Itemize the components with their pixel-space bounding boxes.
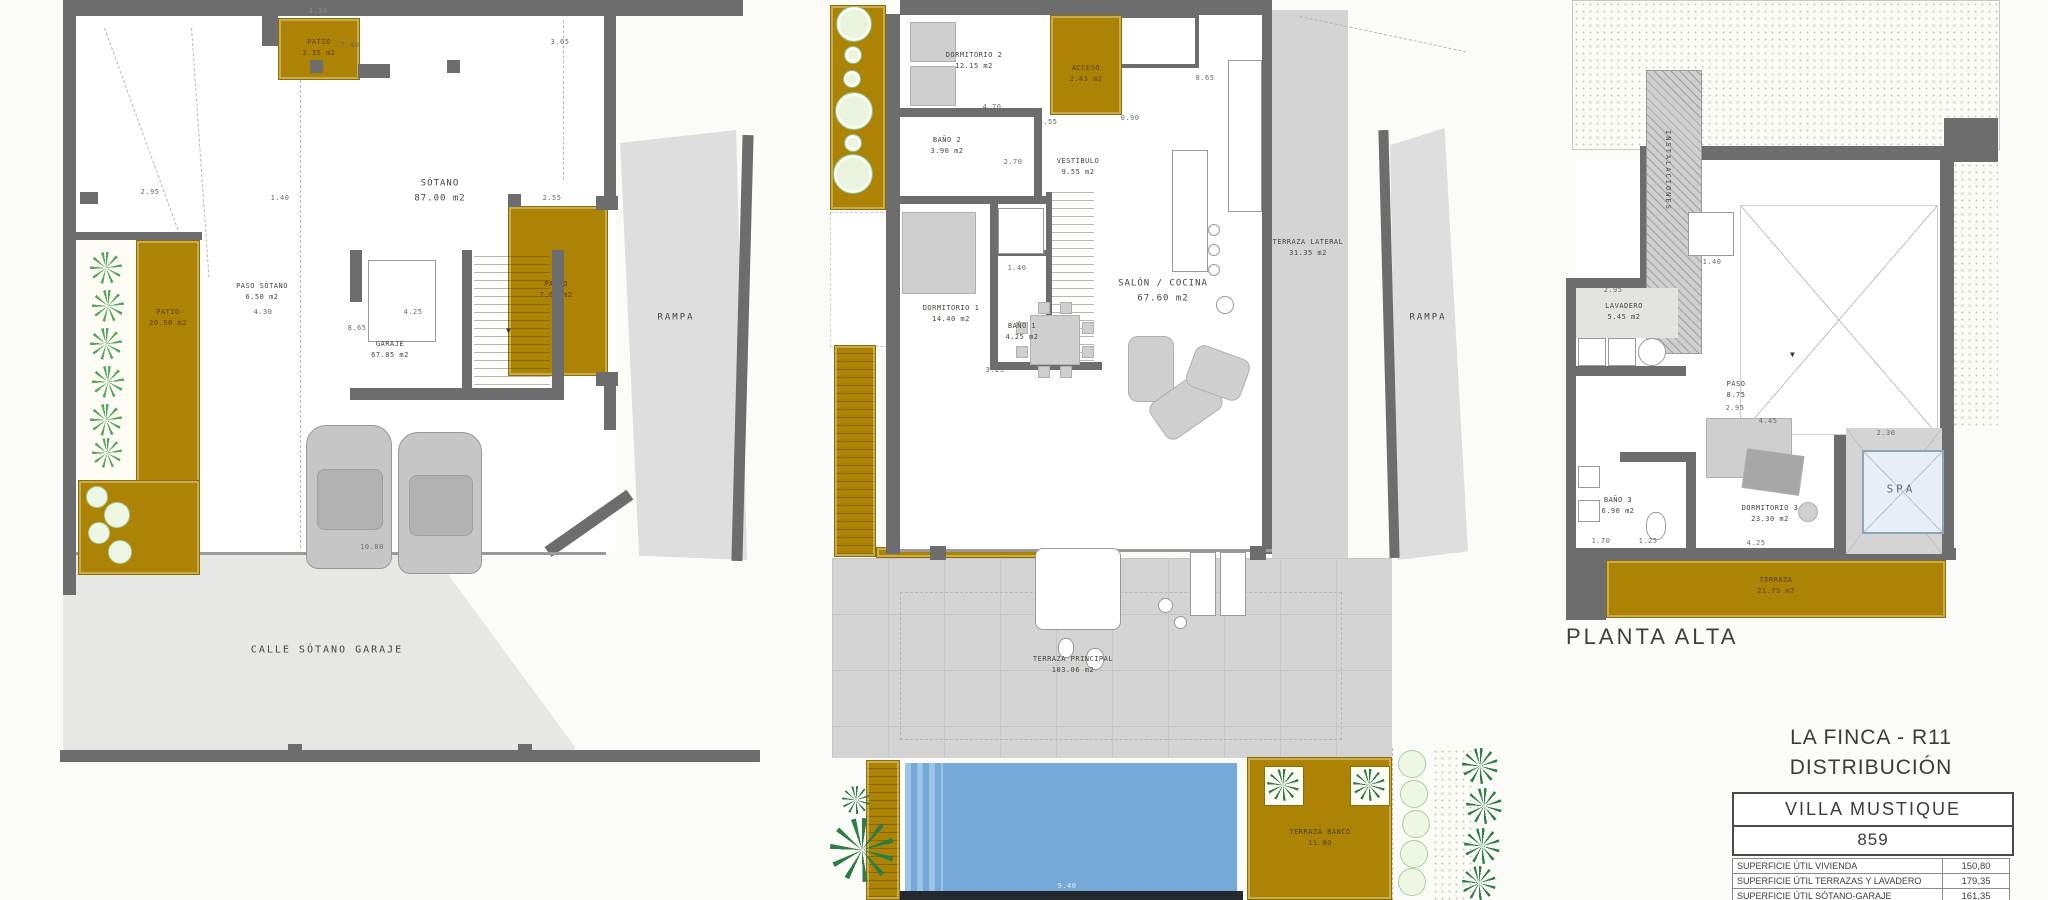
palm-icon [1353, 769, 1385, 801]
room-label-dormitorio1: DORMITORIO 1 14.40 m2 [923, 303, 980, 325]
plant-icon [90, 252, 122, 284]
side-table [1216, 296, 1234, 314]
dimension: 1.70 [1592, 537, 1611, 545]
dimension: 4.45 [1759, 417, 1778, 425]
car-roof [317, 469, 383, 531]
palm-icon [1464, 828, 1500, 864]
dimension: 3.55 [1039, 118, 1058, 126]
elevator [1688, 212, 1734, 256]
wall-segment [76, 232, 202, 240]
dimension: 8.65 [1196, 74, 1215, 82]
elevator [998, 208, 1044, 254]
room-label-acceso: ACCESO 2.43 m2 [1069, 63, 1102, 85]
terrace-dashed-outline [900, 592, 1342, 740]
ramp-label: RAMPA [657, 310, 694, 325]
sink [1578, 500, 1600, 522]
wall-post [518, 744, 532, 754]
floor-title-planta-alta: PLANTA ALTA [1566, 624, 1738, 650]
palm-icon [1462, 866, 1496, 900]
blanket [1741, 448, 1804, 496]
plant-icon [90, 328, 122, 360]
dimension: 2.95 [141, 188, 160, 196]
bush-icon [88, 522, 110, 544]
room-label-terraza-lateral: TERRAZA LATERAL 31.35 m2 [1273, 237, 1344, 259]
small-table [1158, 598, 1173, 613]
washer [1608, 338, 1636, 366]
wall-segment [1686, 452, 1696, 558]
wall-segment [1566, 366, 1686, 376]
wall-segment [900, 196, 1048, 204]
column [930, 546, 946, 560]
dimension: 2.95 [1604, 286, 1623, 294]
wall-segment [1566, 278, 1576, 558]
room-label-vestibulo: VESTÍBULO 9.55 m2 [1057, 156, 1099, 178]
kitchen-counter [1228, 60, 1262, 212]
stairwell-void [1740, 205, 1938, 435]
dimension: 3.65 [551, 38, 570, 46]
kitchen-island [1172, 150, 1208, 272]
room-label-salon: SALÓN / COCINA 67.60 m2 [1118, 277, 1208, 308]
dimension: 7.40 [341, 41, 360, 49]
dimension: 4.25 [404, 308, 423, 316]
area-value: 179,35 [1943, 874, 2010, 889]
dimension: 1.40 [1703, 258, 1722, 266]
plant-icon [92, 290, 124, 322]
tree-icon [844, 134, 862, 152]
tree-icon [843, 70, 861, 88]
wall-segment [886, 14, 900, 554]
bush-icon [1398, 750, 1426, 778]
project-title: LA FINCA - R11 [1730, 726, 2012, 750]
wall-segment [990, 204, 998, 366]
palm-icon [1466, 788, 1502, 824]
pool-edge [898, 891, 1243, 900]
area-label: SUPERFICIE ÚTIL SÓTANO-GARAJE [1733, 889, 1943, 900]
elevator [368, 260, 436, 342]
dashed-boundary [1392, 748, 1393, 900]
room-label-garaje: GARAJE 67.85 m2 [371, 339, 409, 361]
ramp-area [1390, 128, 1468, 560]
dimension: 1.40 [271, 194, 290, 202]
bush-icon [1400, 780, 1428, 808]
wall-segment [1566, 560, 1606, 620]
palm-icon [842, 786, 870, 814]
column [447, 60, 460, 73]
room-label-paso-sotano: PASO SÓTANO 6.50 m2 [236, 281, 288, 303]
tree-icon [835, 92, 873, 130]
roof-terrace-side [1952, 148, 1998, 430]
lounger [1220, 552, 1246, 616]
table-row: SUPERFICIE ÚTIL TERRAZAS Y LAVADERO 179,… [1733, 874, 2010, 889]
column [1250, 546, 1266, 560]
villa-name: VILLA MUSTIQUE [1734, 794, 2012, 827]
bush-icon [86, 486, 108, 508]
bush-icon [1398, 868, 1426, 896]
room-label-patio-left: PATIO 20.50 m2 [149, 307, 187, 329]
room-label-dormitorio3: DORMITORIO 3 23.30 m2 [1742, 503, 1799, 525]
stair-arrow: ▼ [1790, 350, 1795, 359]
dimension: 2.55 [543, 194, 562, 202]
villa-number: 859 [1734, 827, 2012, 852]
dimension: 9.40 [1058, 882, 1077, 890]
lounger [1190, 552, 1216, 616]
table-row: SUPERFICIE ÚTIL VIVIENDA 150,80 [1733, 859, 2010, 874]
ramp-label: RAMPA [1409, 310, 1446, 325]
room-label-dormitorio2: DORMITORIO 2 12.15 m2 [946, 50, 1003, 72]
wall-segment [63, 0, 743, 16]
room-label-bano3: BAÑO 3 6.90 m2 [1601, 495, 1634, 517]
chair [1060, 302, 1072, 314]
room-label-terraza-principal: TERRAZA PRINCIPAL 103.06 m2 [1033, 654, 1113, 676]
car-roof [409, 475, 473, 536]
chair [1038, 366, 1050, 378]
tree-icon [844, 46, 862, 64]
bush-icon [1402, 810, 1430, 838]
bathtub [1646, 512, 1666, 540]
table-row: SUPERFICIE ÚTIL SÓTANO-GARAJE 161,35 [1733, 889, 2010, 900]
dimension: 3.25 [986, 366, 1005, 374]
room-label-bano1: BAÑO 1 4.25 m2 [1005, 321, 1038, 343]
wall-segment [552, 250, 564, 400]
wall-segment [63, 0, 76, 595]
room-label-bano2: BAÑO 2 3.90 m2 [930, 135, 963, 157]
wall-segment [358, 64, 390, 78]
plant-icon [90, 404, 122, 436]
area-label: SUPERFICIE ÚTIL TERRAZAS Y LAVADERO [1733, 874, 1943, 889]
exterior-stairs [834, 345, 876, 557]
bed [902, 212, 976, 294]
street-label: CALLE SÓTANO GARAJE [251, 642, 403, 659]
dimension: 4.30 [254, 308, 273, 316]
room-label-paso: PASO 8.75 [1727, 379, 1746, 401]
dimension: 3.30 [309, 7, 328, 15]
room-label-sotano: SÓTANO 87.00 m2 [414, 177, 465, 208]
roof-terrace [1572, 0, 2000, 150]
washer [1578, 338, 1606, 366]
drawing-title: DISTRIBUCIÓN [1730, 756, 2012, 780]
chair [1082, 322, 1094, 334]
wall-segment [350, 250, 362, 302]
villa-name-box: VILLA MUSTIQUE 859 [1732, 792, 2014, 856]
column [310, 60, 323, 73]
stool [1208, 244, 1220, 256]
room-label-spa: SPA [1887, 481, 1916, 500]
column [80, 192, 98, 204]
wall-segment [900, 0, 1272, 15]
terrace-table [1035, 548, 1121, 630]
wall-segment [350, 388, 564, 400]
stair-arrow: ▼ [506, 326, 511, 335]
dimension: 4.70 [983, 103, 1002, 111]
plant-icon [92, 366, 124, 398]
dashed-grid-line [300, 20, 301, 548]
dimension: 2.30 [1877, 429, 1896, 437]
dimension: 0.90 [1121, 114, 1140, 122]
dimension: 4.25 [1747, 539, 1766, 547]
chair [1798, 502, 1818, 522]
bottom-wall [60, 750, 760, 762]
chair [1016, 346, 1028, 358]
wall-segment [262, 16, 278, 46]
wall-segment [1262, 14, 1272, 554]
ramp-area [612, 130, 747, 560]
palm-icon [1462, 748, 1498, 784]
wall-post [288, 744, 302, 754]
sink [1638, 338, 1666, 366]
dimension: 2.95 [1726, 404, 1745, 412]
area-value: 150,80 [1943, 859, 2010, 874]
floorplan-sheet: CALLE SÓTANO GARAJE PATIO 3.35 m2 [0, 0, 2048, 900]
wall-segment [1620, 452, 1696, 462]
tree-icon [836, 6, 872, 42]
room-label-terraza: TERRAZA 21.75 m2 [1757, 575, 1795, 597]
chair [1082, 346, 1094, 358]
bush-icon [1400, 840, 1428, 868]
chair [1038, 302, 1050, 314]
sink [1578, 466, 1600, 488]
room-label-terraza-banco: TERRAZA BANCO 11.80 [1289, 827, 1350, 849]
dimension: 8.65 [348, 324, 367, 332]
stool [1208, 264, 1220, 276]
dimension: 2.70 [1004, 158, 1023, 166]
dimension: 10.00 [360, 543, 384, 551]
room-label-patio-top: PATIO 3.35 m2 [302, 37, 335, 59]
wall-segment [462, 250, 472, 400]
areas-table: SUPERFICIE ÚTIL VIVIENDA 150,80 SUPERFIC… [1732, 858, 2010, 900]
area-label: SUPERFICIE ÚTIL VIVIENDA [1733, 859, 1943, 874]
stairs [474, 256, 550, 388]
wall-segment [900, 108, 1040, 117]
small-table [1174, 616, 1187, 629]
tree-icon [833, 154, 873, 194]
terraza-lateral-area [1272, 10, 1348, 558]
wall-segment [596, 372, 618, 386]
side-walk [830, 212, 888, 347]
bush-icon [108, 540, 132, 564]
car [398, 432, 482, 574]
room-label-instalaciones: INSTALACIONES [1664, 130, 1672, 211]
palm-icon [830, 818, 894, 882]
pool [905, 763, 1237, 895]
column [508, 194, 521, 207]
bush-icon [104, 502, 130, 528]
wall-segment [604, 16, 616, 206]
area-value: 161,35 [1943, 889, 2010, 900]
chair [1060, 366, 1072, 378]
plant-icon [92, 438, 122, 468]
room-label-lavadero: LAVADERO 5.45 m2 [1605, 301, 1643, 323]
stool [1208, 224, 1220, 236]
dimension: 1.40 [1008, 264, 1027, 272]
pool-steps [905, 763, 943, 895]
palm-icon [1267, 769, 1299, 801]
dimension: 1.25 [1639, 537, 1658, 545]
wall-segment [596, 196, 618, 210]
